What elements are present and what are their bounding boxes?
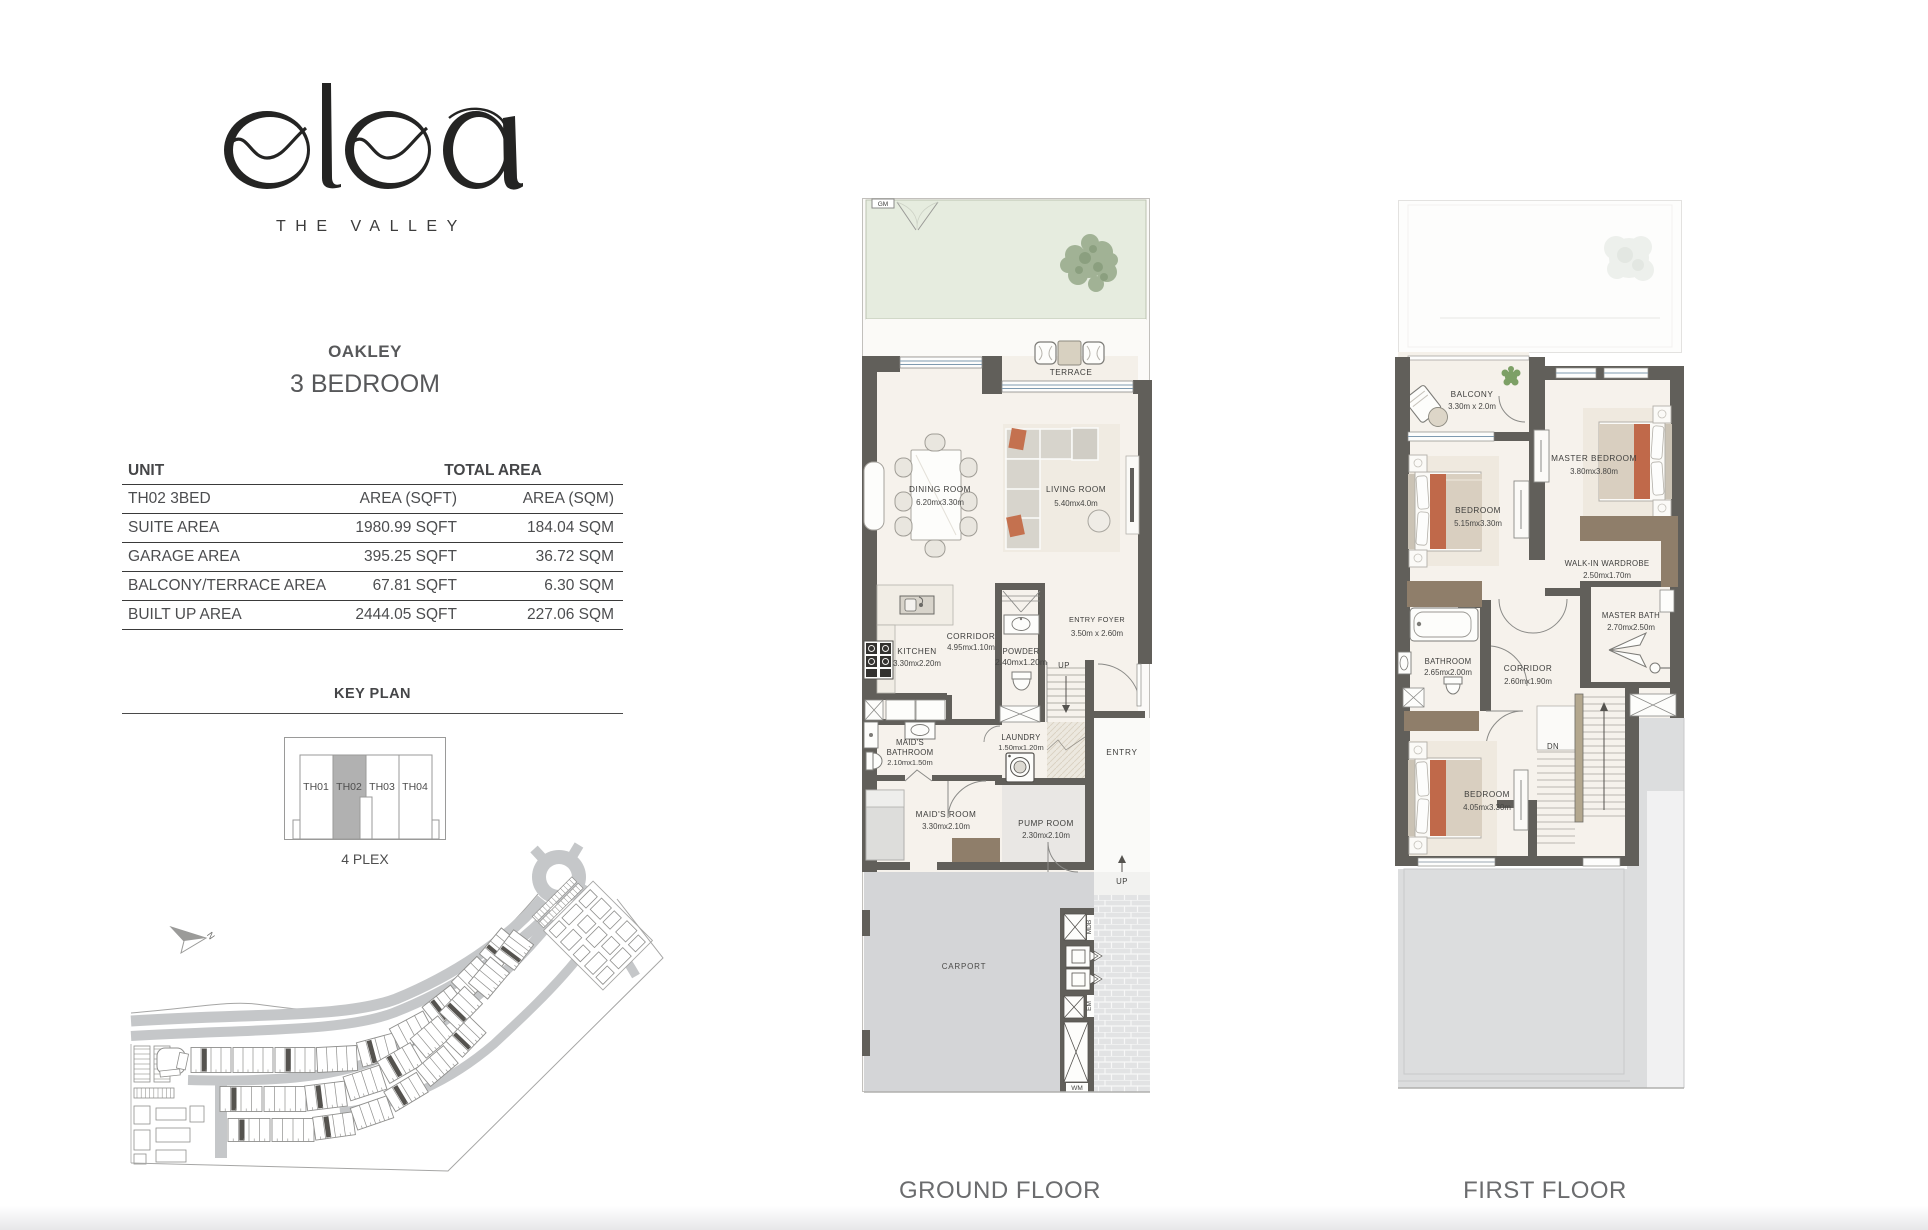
svg-text:N: N bbox=[205, 930, 217, 941]
svg-text:CARPORT: CARPORT bbox=[942, 962, 987, 971]
svg-text:3.30mx2.20m: 3.30mx2.20m bbox=[893, 659, 941, 668]
svg-text:MASTER BEDROOM: MASTER BEDROOM bbox=[1551, 454, 1637, 463]
svg-text:GM: GM bbox=[878, 201, 888, 208]
svg-text:4.05mx3.30m: 4.05mx3.30m bbox=[1463, 803, 1511, 812]
svg-text:PUMP ROOM: PUMP ROOM bbox=[1018, 819, 1074, 828]
svg-text:6.20mx3.30m: 6.20mx3.30m bbox=[916, 498, 964, 507]
svg-text:BATHROOM: BATHROOM bbox=[887, 748, 934, 757]
svg-text:MDB: MDB bbox=[1086, 920, 1093, 934]
svg-text:POWDER: POWDER bbox=[1003, 647, 1040, 656]
svg-text:ENTRY: ENTRY bbox=[1106, 748, 1138, 757]
svg-text:3.50m x 2.60m: 3.50m x 2.60m bbox=[1071, 629, 1124, 638]
svg-text:2.60mx1.90m: 2.60mx1.90m bbox=[1504, 677, 1552, 686]
svg-text:LAUNDRY: LAUNDRY bbox=[1001, 733, 1041, 742]
svg-text:DINING ROOM: DINING ROOM bbox=[909, 485, 971, 494]
svg-text:BALCONY: BALCONY bbox=[1451, 390, 1494, 399]
svg-text:CORRIDOR: CORRIDOR bbox=[1504, 664, 1553, 673]
svg-text:UP: UP bbox=[1116, 877, 1128, 886]
svg-text:3.80mx3.80m: 3.80mx3.80m bbox=[1570, 467, 1618, 476]
svg-text:3.30m x 2.0m: 3.30m x 2.0m bbox=[1448, 402, 1496, 411]
svg-text:1.50mx1.20m: 1.50mx1.20m bbox=[998, 743, 1043, 752]
svg-text:CORRIDOR: CORRIDOR bbox=[947, 632, 996, 641]
svg-text:WM: WM bbox=[1071, 1085, 1083, 1092]
svg-text:2.50mx1.70m: 2.50mx1.70m bbox=[1583, 571, 1631, 580]
svg-text:DN: DN bbox=[1547, 742, 1559, 751]
svg-text:EM: EM bbox=[1086, 1001, 1093, 1011]
svg-text:2.65mx2.00m: 2.65mx2.00m bbox=[1424, 668, 1472, 677]
svg-text:ENTRY FOYER: ENTRY FOYER bbox=[1069, 615, 1125, 624]
svg-text:2.10mx1.50m: 2.10mx1.50m bbox=[887, 758, 932, 767]
svg-text:5.15mx3.30m: 5.15mx3.30m bbox=[1454, 519, 1502, 528]
svg-text:2.40mx1.20m: 2.40mx1.20m bbox=[995, 657, 1047, 667]
svg-text:WALK-IN WARDROBE: WALK-IN WARDROBE bbox=[1565, 559, 1650, 568]
svg-text:TH04: TH04 bbox=[402, 781, 428, 793]
svg-text:LIVING ROOM: LIVING ROOM bbox=[1046, 485, 1106, 494]
svg-text:BATHROOM: BATHROOM bbox=[1425, 657, 1472, 666]
svg-text:UP: UP bbox=[1058, 661, 1070, 670]
svg-text:2.30mx2.10m: 2.30mx2.10m bbox=[1022, 831, 1070, 840]
svg-text:MASTER BATH: MASTER BATH bbox=[1602, 611, 1660, 620]
svg-text:TH01: TH01 bbox=[303, 781, 329, 793]
svg-text:BEDROOM: BEDROOM bbox=[1455, 506, 1501, 515]
svg-text:MAID'S ROOM: MAID'S ROOM bbox=[916, 810, 977, 819]
svg-text:BEDROOM: BEDROOM bbox=[1464, 790, 1510, 799]
svg-text:TH02: TH02 bbox=[336, 781, 362, 793]
svg-text:TERRACE: TERRACE bbox=[1050, 368, 1093, 377]
svg-text:5.40mx4.0m: 5.40mx4.0m bbox=[1054, 499, 1098, 508]
svg-text:KITCHEN: KITCHEN bbox=[897, 647, 936, 656]
svg-text:MAID'S: MAID'S bbox=[896, 738, 924, 747]
svg-text:2.70mx2.50m: 2.70mx2.50m bbox=[1607, 623, 1655, 632]
svg-text:4.95mx1.10m: 4.95mx1.10m bbox=[947, 643, 995, 652]
svg-text:TH03: TH03 bbox=[369, 781, 395, 793]
svg-text:3.30mx2.10m: 3.30mx2.10m bbox=[922, 822, 970, 831]
